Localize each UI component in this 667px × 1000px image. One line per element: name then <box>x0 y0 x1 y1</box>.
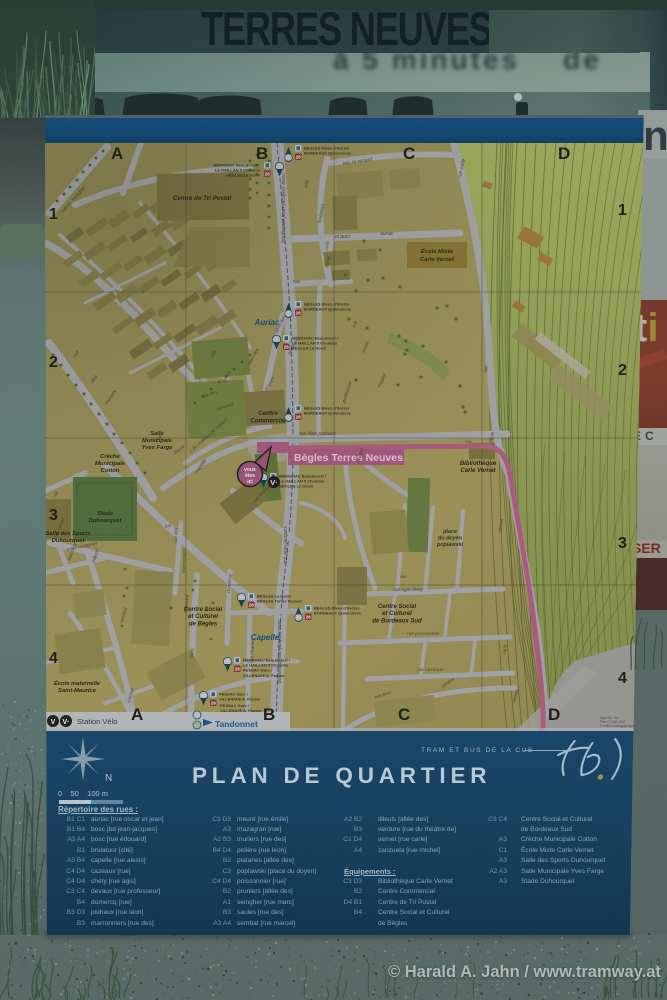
svg-text:V·: V· <box>63 719 70 726</box>
svg-text:© édition cartographique: © édition cartographique <box>600 724 635 728</box>
svg-text:B: B <box>263 705 275 724</box>
svg-text:V: V <box>51 719 56 726</box>
svg-text:Tandonnet: Tandonnet <box>215 719 258 729</box>
svg-text:C: C <box>398 705 410 724</box>
svg-text:VILLENAVE A. France: VILLENAVE A. France <box>220 708 262 713</box>
svg-text:D: D <box>548 705 560 724</box>
svg-text:A: A <box>131 705 143 724</box>
svg-text:Station Vélo: Station Vélo <box>77 717 117 726</box>
